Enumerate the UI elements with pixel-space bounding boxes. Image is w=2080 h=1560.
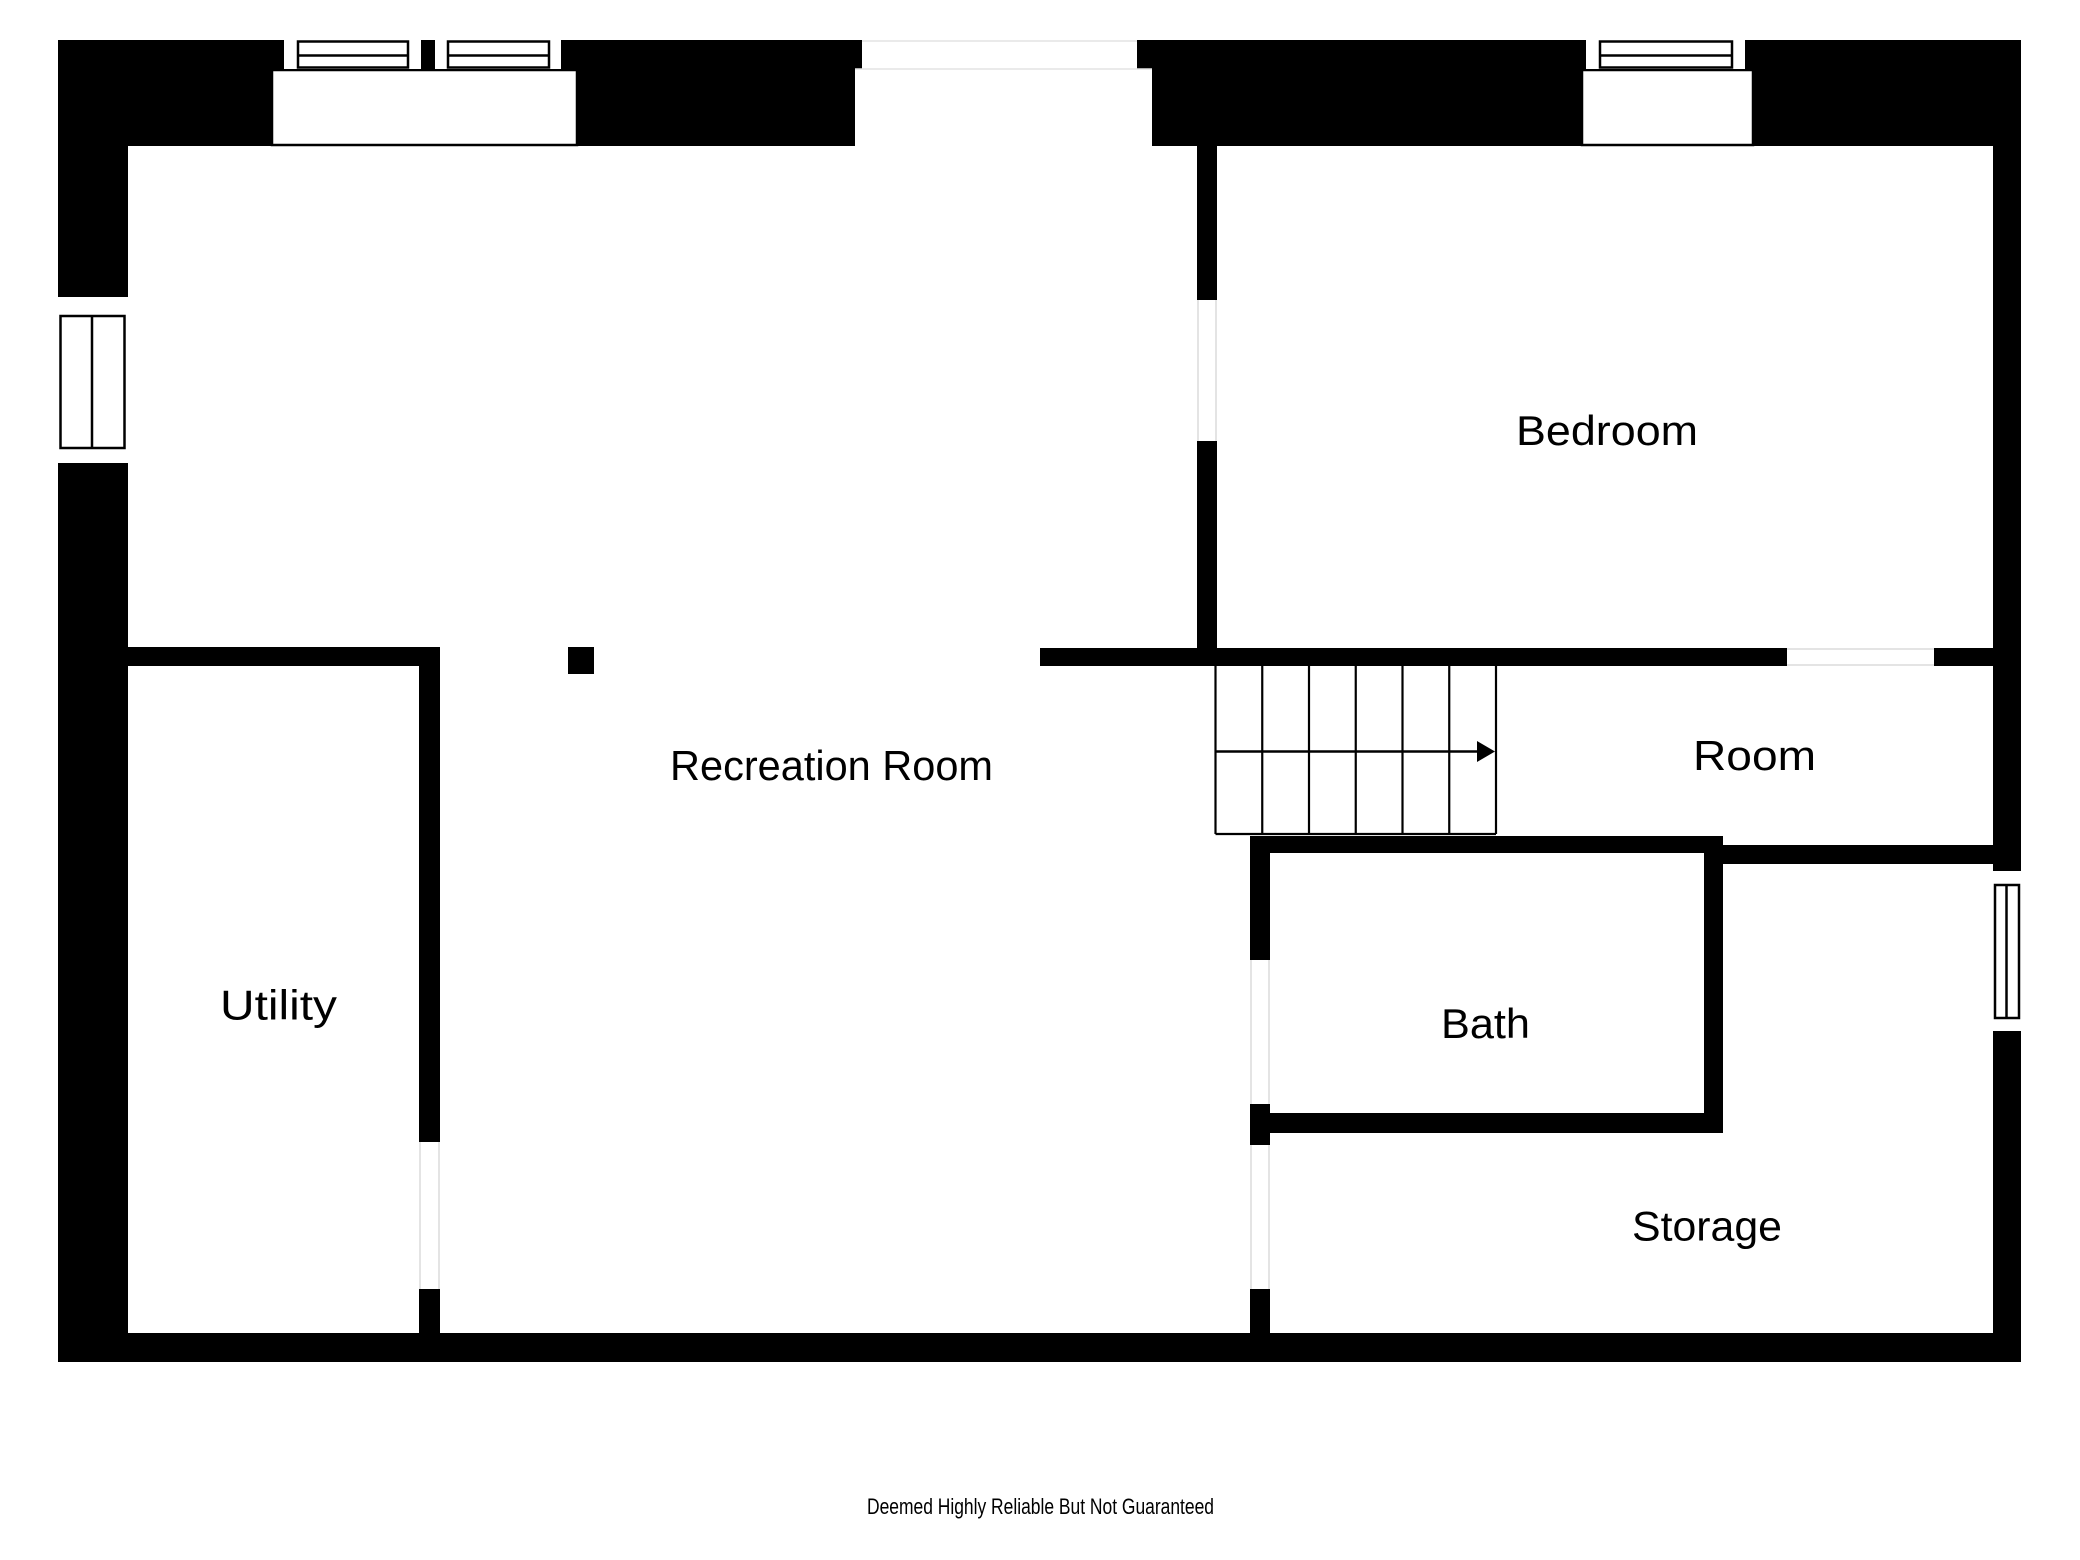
svg-text:Bath: Bath xyxy=(1441,1000,1530,1047)
svg-text:Storage: Storage xyxy=(1632,1203,1782,1250)
svg-text:Utility: Utility xyxy=(220,982,337,1029)
svg-text:Bedroom: Bedroom xyxy=(1516,407,1698,454)
svg-text:Recreation Room: Recreation Room xyxy=(670,742,993,789)
svg-text:Deemed Highly Reliable But Not: Deemed Highly Reliable But Not Guarantee… xyxy=(867,1494,1214,1519)
svg-text:Room: Room xyxy=(1693,732,1816,779)
